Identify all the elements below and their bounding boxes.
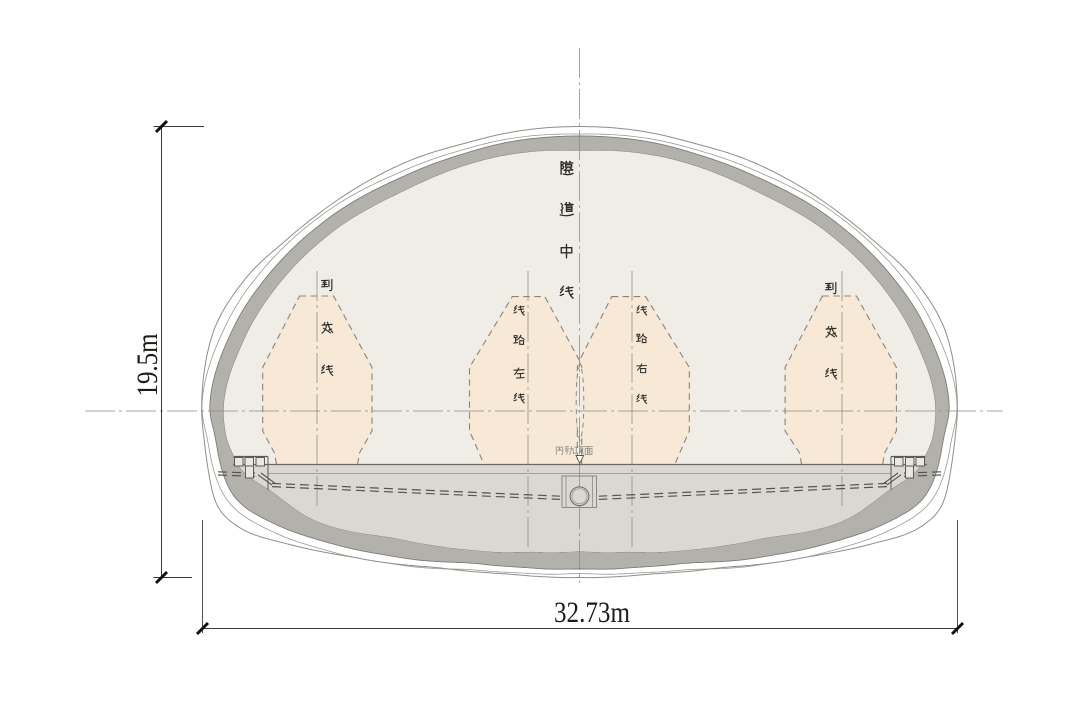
svg-text:32.73m: 32.73m bbox=[554, 596, 630, 629]
svg-text:19.5m: 19.5m bbox=[131, 334, 164, 397]
